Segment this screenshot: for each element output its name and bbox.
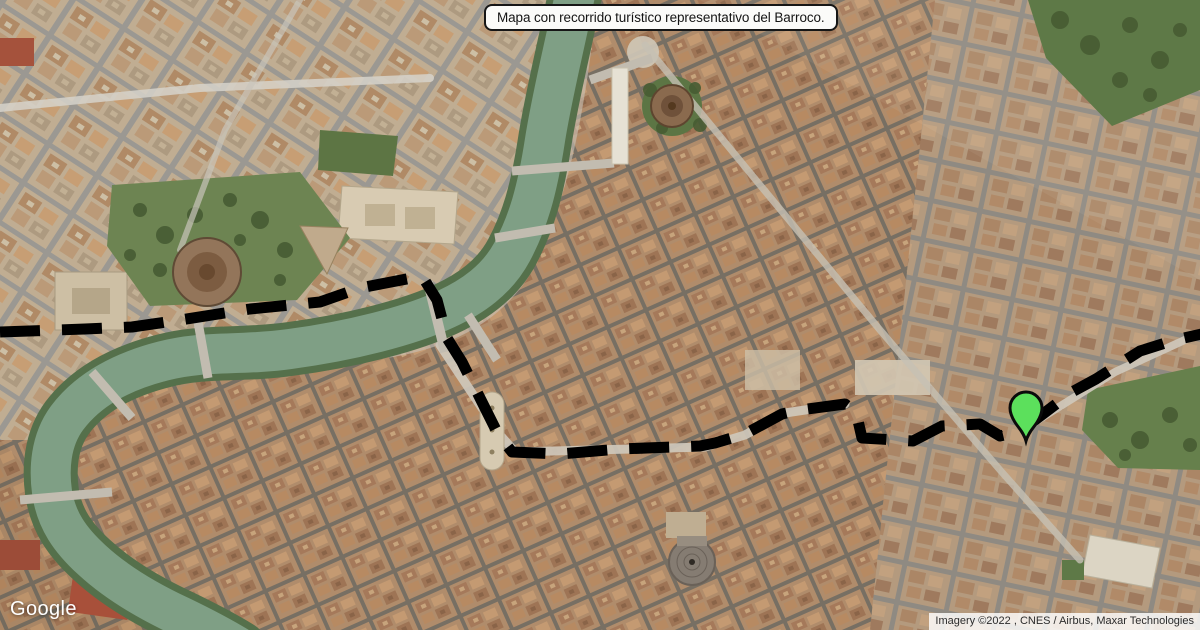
imagery-attribution: Imagery ©2022 , CNES / Airbus, Maxar Tec… [929, 613, 1200, 630]
map-viewport[interactable]: Mapa con recorrido turístico representat… [0, 0, 1200, 630]
imagery-attribution-text: Imagery ©2022 , CNES / Airbus, Maxar Tec… [935, 615, 1194, 627]
google-logo[interactable]: Google [10, 598, 77, 621]
city-blocks-texture [0, 0, 1200, 630]
map-title-box: Mapa con recorrido turístico representat… [484, 4, 838, 31]
satellite-map-canvas[interactable] [0, 0, 1200, 630]
map-title-text: Mapa con recorrido turístico representat… [497, 10, 825, 25]
